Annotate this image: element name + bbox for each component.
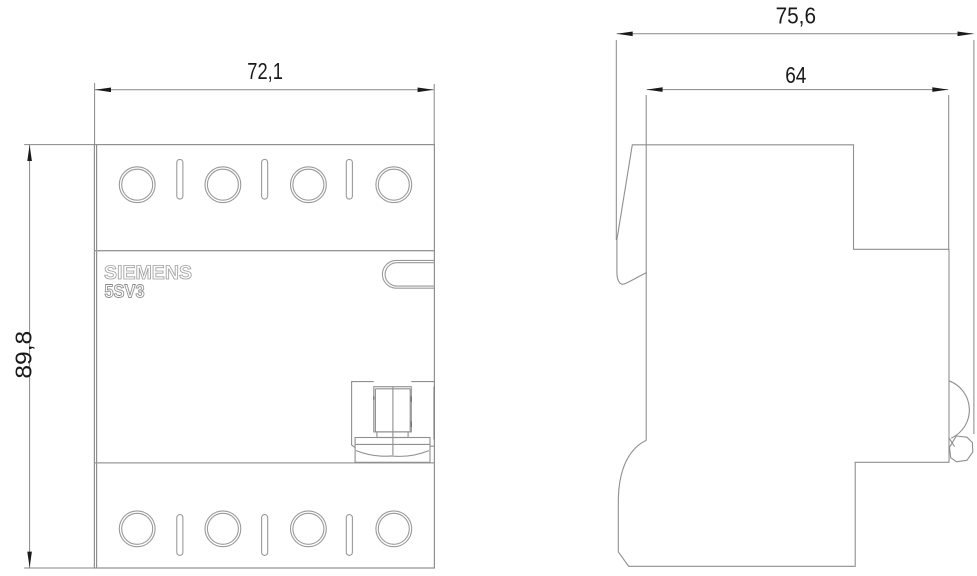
- svg-text:89,8: 89,8: [11, 331, 37, 379]
- svg-text:72,1: 72,1: [247, 58, 283, 84]
- svg-text:75,6: 75,6: [776, 2, 816, 28]
- svg-text:5SV3: 5SV3: [104, 280, 144, 301]
- svg-text:64: 64: [785, 62, 806, 88]
